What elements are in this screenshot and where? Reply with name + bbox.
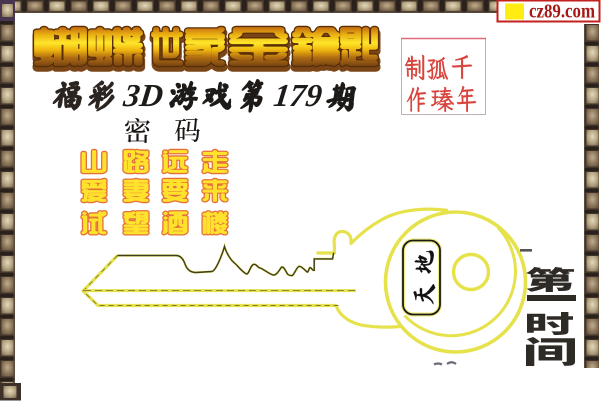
svg-text:3D: 3D [121, 77, 166, 113]
svg-text:cz89.com: cz89.com [529, 1, 595, 23]
svg-text:179: 179 [272, 77, 324, 113]
